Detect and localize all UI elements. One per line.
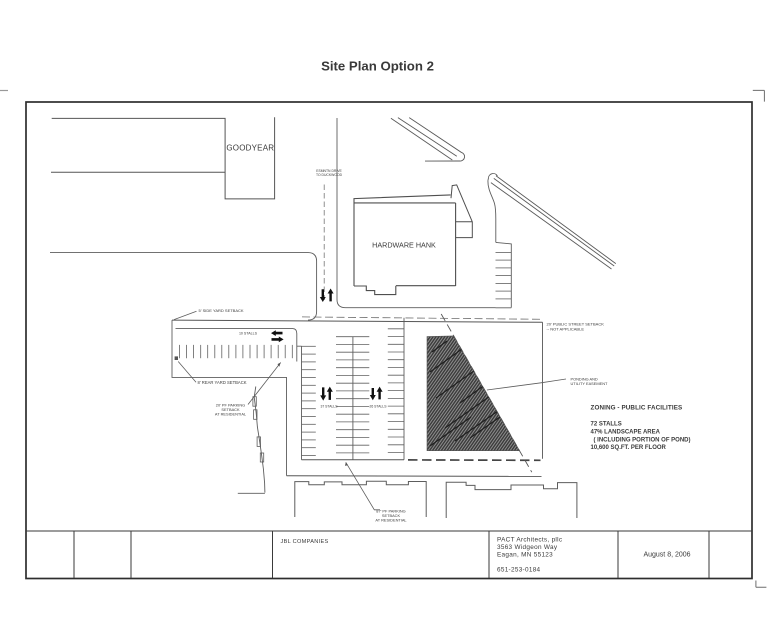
svg-text:10,600 SQ.FT. PER FLOOR: 10,600 SQ.FT. PER FLOOR xyxy=(591,445,667,451)
svg-text:Eagan, MN 55123: Eagan, MN 55123 xyxy=(497,552,553,559)
svg-text:3563 Widgeon Way: 3563 Widgeon Way xyxy=(497,544,558,551)
svg-text:( INCLUDING PORTION OF POND): ( INCLUDING PORTION OF POND) xyxy=(594,437,691,443)
svg-text:HARDWARE HANK: HARDWARE HANK xyxy=(372,240,436,249)
svg-text:JBL COMPANIES: JBL COMPANIES xyxy=(281,539,329,545)
svg-text:47% LANDSCAPE AREA: 47% LANDSCAPE AREA xyxy=(591,429,661,435)
svg-text:651-253-0184: 651-253-0184 xyxy=(497,567,541,574)
svg-text:26 STALLS: 26 STALLS xyxy=(369,404,387,408)
svg-text:UTILITY EASEMENT: UTILITY EASEMENT xyxy=(571,381,609,386)
svg-text:ZONING - PUBLIC FACILITIES: ZONING - PUBLIC FACILITIES xyxy=(591,404,683,411)
svg-text:-- NOT APPLICABLE: -- NOT APPLICABLE xyxy=(547,326,585,331)
svg-text:Site Plan Option 2: Site Plan Option 2 xyxy=(321,59,434,74)
svg-text:TO DUCKWOOD: TO DUCKWOOD xyxy=(316,173,343,177)
svg-text:GOODYEAR: GOODYEAR xyxy=(226,144,274,153)
svg-text:PACT Architects, pllc: PACT Architects, pllc xyxy=(497,537,563,544)
svg-text:AT RESIDENTIAL: AT RESIDENTIAL xyxy=(215,411,247,416)
svg-text:5' SIDE YARD SETBACK: 5' SIDE YARD SETBACK xyxy=(199,308,244,313)
svg-text:AT RESIDENTIAL: AT RESIDENTIAL xyxy=(375,518,407,523)
svg-text:37 STALLS: 37 STALLS xyxy=(320,404,338,408)
svg-text:8' REAR YARD SETBACK: 8' REAR YARD SETBACK xyxy=(198,380,247,385)
svg-text:August 8, 2006: August 8, 2006 xyxy=(643,552,690,559)
svg-text:10 STALLS: 10 STALLS xyxy=(239,331,258,335)
svg-text:72 STALLS: 72 STALLS xyxy=(591,421,622,427)
